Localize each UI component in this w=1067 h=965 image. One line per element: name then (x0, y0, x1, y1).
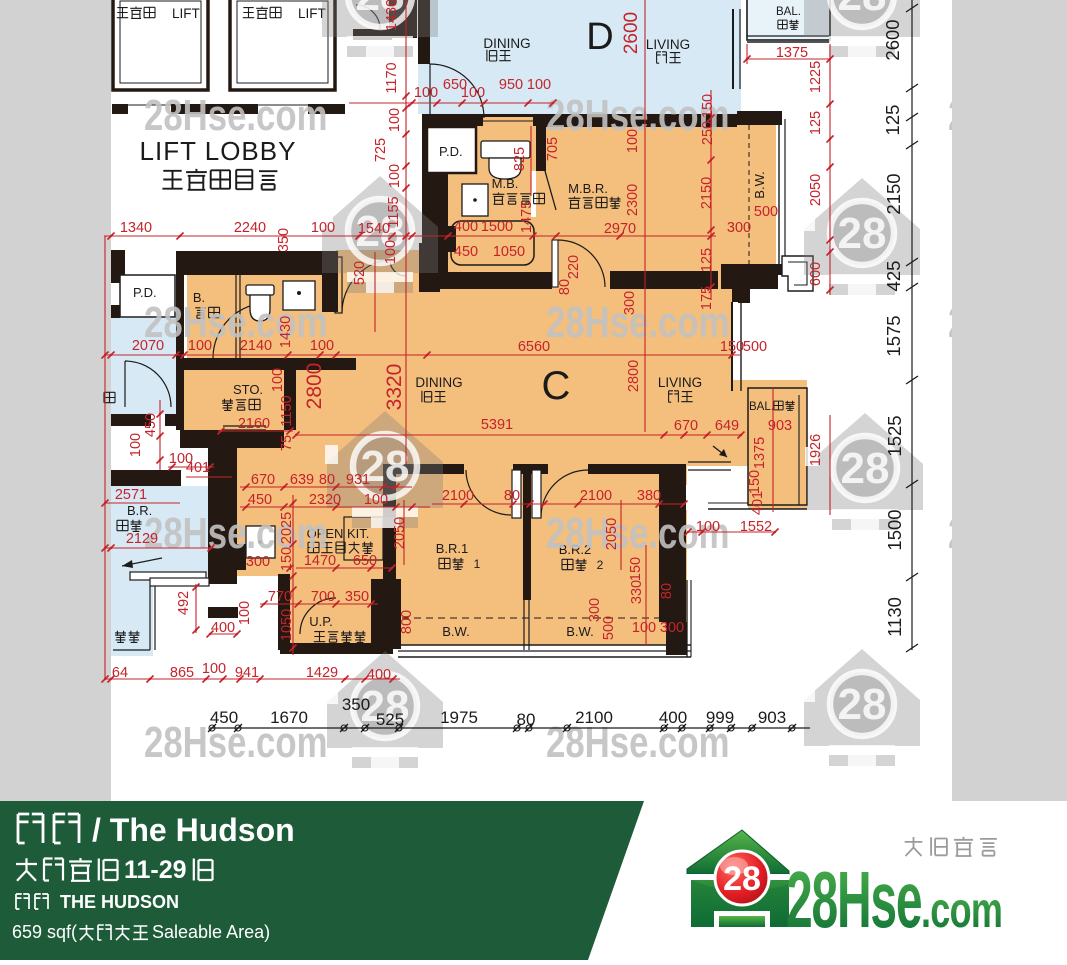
svg-text:100: 100 (270, 368, 286, 392)
svg-text:1470: 1470 (304, 553, 336, 569)
svg-text:28: 28 (838, 0, 887, 20)
svg-text:LIVING: LIVING (658, 375, 702, 390)
svg-text:2600: 2600 (882, 19, 903, 60)
svg-text:2140: 2140 (240, 338, 272, 354)
svg-text:380: 380 (637, 488, 661, 504)
svg-text:2150: 2150 (699, 177, 715, 209)
svg-text:2025: 2025 (279, 512, 295, 544)
svg-text:80: 80 (517, 710, 536, 729)
svg-text:100: 100 (310, 338, 334, 354)
svg-text:P.D.: P.D. (439, 144, 463, 159)
svg-text:DINING: DINING (415, 375, 462, 390)
svg-text:175: 175 (699, 286, 715, 310)
svg-text:28: 28 (841, 444, 890, 493)
svg-text:450: 450 (248, 492, 272, 508)
svg-text:64: 64 (112, 665, 128, 681)
svg-text:STO.: STO. (233, 382, 263, 397)
svg-text:28Hse.com: 28Hse.com (144, 509, 328, 558)
svg-text:2600: 2600 (621, 12, 642, 54)
svg-text:865: 865 (170, 665, 194, 681)
svg-text:LIFT: LIFT (298, 6, 326, 21)
svg-text:100: 100 (527, 77, 551, 93)
svg-text:1926: 1926 (808, 434, 824, 466)
svg-text:220: 220 (566, 255, 582, 279)
svg-text:400: 400 (367, 667, 391, 683)
svg-text:1050: 1050 (279, 609, 295, 641)
svg-text:725: 725 (373, 138, 389, 162)
svg-text:28Hse.com: 28Hse.com (546, 718, 730, 767)
svg-text:825: 825 (512, 147, 528, 171)
svg-text:650: 650 (353, 553, 377, 569)
svg-text:330: 330 (629, 580, 645, 604)
svg-text:100: 100 (188, 338, 212, 354)
svg-text:2050: 2050 (808, 174, 824, 206)
svg-text:400: 400 (211, 620, 235, 636)
svg-text:B.W.: B.W. (752, 171, 767, 198)
svg-text:100: 100 (414, 85, 438, 101)
svg-text:1375: 1375 (752, 437, 768, 469)
svg-text:M.B.: M.B. (492, 176, 519, 191)
svg-text:659 sqf(: 659 sqf( (12, 922, 77, 942)
svg-text:5391: 5391 (481, 417, 513, 433)
svg-text:1670: 1670 (270, 708, 308, 727)
svg-text:3320: 3320 (383, 364, 406, 411)
svg-text:500: 500 (601, 616, 617, 640)
svg-text:.com: .com (921, 883, 1002, 938)
svg-text:400: 400 (454, 219, 478, 235)
svg-text:2800: 2800 (626, 360, 642, 392)
svg-text:1225: 1225 (808, 61, 824, 93)
svg-text:2100: 2100 (575, 708, 613, 727)
svg-text:300: 300 (622, 291, 638, 315)
svg-text:450: 450 (210, 708, 238, 727)
svg-text:80: 80 (557, 279, 573, 295)
svg-text:300: 300 (727, 220, 751, 236)
svg-text:300: 300 (246, 554, 270, 570)
svg-text:2300: 2300 (625, 184, 641, 216)
svg-text:401: 401 (186, 460, 210, 476)
svg-text:1575: 1575 (883, 315, 904, 356)
svg-text:670: 670 (251, 472, 275, 488)
svg-text:28: 28 (838, 209, 887, 258)
svg-text:150: 150 (700, 94, 716, 118)
svg-text:350: 350 (345, 589, 369, 605)
svg-text:100: 100 (387, 108, 403, 132)
svg-text:B.W.: B.W. (442, 624, 469, 639)
svg-text:100: 100 (383, 240, 399, 264)
svg-text:2150: 2150 (883, 173, 904, 214)
svg-text:BAL.: BAL. (776, 6, 801, 18)
svg-text:2970: 2970 (604, 221, 636, 237)
svg-text:1130: 1130 (884, 597, 905, 637)
svg-text:M.B.R.: M.B.R. (568, 181, 608, 196)
svg-text:125: 125 (699, 248, 715, 272)
svg-text:1429: 1429 (306, 665, 338, 681)
svg-text:1: 1 (474, 557, 481, 571)
svg-text:2129: 2129 (126, 531, 158, 547)
svg-text:100: 100 (202, 661, 226, 677)
svg-text:400: 400 (659, 708, 687, 727)
svg-text:770: 770 (268, 589, 292, 605)
svg-text:1475: 1475 (519, 201, 535, 233)
svg-text:THE HUDSON: THE HUDSON (60, 892, 179, 912)
svg-text:B.W.: B.W. (566, 624, 593, 639)
svg-text:C: C (542, 364, 571, 408)
svg-text:2: 2 (597, 558, 604, 572)
svg-text:150: 150 (279, 547, 295, 571)
svg-text:649: 649 (715, 418, 739, 434)
svg-text:450: 450 (143, 413, 159, 437)
svg-text:1430: 1430 (384, 0, 400, 31)
svg-text:B.R.1: B.R.1 (436, 541, 469, 556)
svg-text:2050: 2050 (604, 518, 620, 550)
svg-text:2050: 2050 (392, 517, 408, 549)
svg-text:150: 150 (628, 557, 644, 581)
svg-text:705: 705 (545, 137, 561, 161)
svg-text:150: 150 (747, 470, 763, 494)
svg-text:LIFT: LIFT (172, 6, 200, 21)
svg-text:100: 100 (311, 220, 335, 236)
svg-text:80: 80 (504, 488, 520, 504)
svg-text:125: 125 (808, 111, 824, 135)
svg-text:28: 28 (838, 680, 887, 729)
svg-text:950: 950 (499, 77, 523, 93)
svg-text:941: 941 (235, 665, 259, 681)
svg-text:1340: 1340 (120, 220, 152, 236)
svg-text:1430: 1430 (278, 316, 294, 348)
svg-text:300: 300 (660, 620, 684, 636)
svg-text:350: 350 (342, 695, 370, 714)
svg-text:100: 100 (128, 433, 144, 457)
svg-text:2800: 2800 (303, 363, 326, 410)
svg-text:U.P.: U.P. (309, 614, 333, 629)
svg-text:520: 520 (352, 261, 368, 285)
svg-text:125: 125 (882, 105, 903, 136)
svg-text:100: 100 (387, 164, 403, 188)
svg-text:903: 903 (768, 418, 792, 434)
svg-text:LIVING: LIVING (646, 37, 690, 52)
svg-text:28Hse.com: 28Hse.com (144, 91, 328, 140)
svg-text:350: 350 (276, 228, 292, 252)
svg-text:1975: 1975 (440, 708, 478, 727)
svg-text:28Hse.com: 28Hse.com (144, 298, 328, 347)
svg-text:Saleable Area): Saleable Area) (152, 922, 270, 942)
svg-text:1552: 1552 (740, 519, 772, 535)
svg-text:401: 401 (750, 491, 766, 515)
svg-text:903: 903 (758, 708, 786, 727)
svg-text:100: 100 (461, 85, 485, 101)
svg-text:670: 670 (674, 418, 698, 434)
svg-text:2320: 2320 (309, 492, 341, 508)
svg-text:100: 100 (625, 129, 641, 153)
svg-text:1050: 1050 (493, 244, 525, 260)
svg-text:639: 639 (290, 472, 314, 488)
svg-text:2100: 2100 (580, 488, 612, 504)
svg-text:999: 999 (706, 708, 734, 727)
svg-text:LIFT LOBBY: LIFT LOBBY (140, 136, 297, 166)
svg-text:80: 80 (659, 583, 675, 599)
svg-text:80: 80 (319, 472, 335, 488)
svg-text:2571: 2571 (115, 487, 147, 503)
svg-text:1155: 1155 (386, 196, 402, 227)
svg-text:100: 100 (696, 519, 720, 535)
svg-text:2240: 2240 (234, 220, 266, 236)
svg-text:450: 450 (454, 244, 478, 260)
svg-text:75: 75 (279, 435, 295, 451)
svg-text:2160: 2160 (238, 416, 270, 432)
svg-text:100: 100 (364, 492, 388, 508)
svg-text:2100: 2100 (442, 488, 474, 504)
svg-text:425: 425 (883, 261, 904, 292)
svg-text:700: 700 (311, 589, 335, 605)
svg-text:1525: 1525 (884, 415, 905, 456)
svg-text:1500: 1500 (481, 219, 513, 235)
svg-text:1375: 1375 (776, 45, 808, 61)
svg-text:DINING: DINING (483, 36, 530, 51)
svg-text:D: D (586, 16, 613, 58)
svg-text:100: 100 (632, 620, 656, 636)
svg-text:100: 100 (237, 601, 253, 625)
svg-text:600: 600 (808, 262, 824, 286)
svg-text:1170: 1170 (384, 62, 400, 93)
svg-text:2070: 2070 (132, 338, 164, 354)
svg-text:/ The Hudson: / The Hudson (92, 812, 295, 848)
svg-text:28Hse: 28Hse (786, 854, 921, 944)
svg-text:11-29: 11-29 (124, 856, 187, 884)
svg-text:6560: 6560 (518, 339, 550, 355)
svg-text:500: 500 (743, 339, 767, 355)
svg-text:525: 525 (376, 710, 404, 729)
svg-text:28: 28 (723, 860, 761, 898)
svg-text:BAL.: BAL. (749, 401, 774, 413)
svg-text:1150: 1150 (279, 395, 295, 426)
svg-text:250: 250 (700, 121, 716, 145)
svg-text:500: 500 (754, 204, 778, 220)
svg-text:931: 931 (346, 472, 370, 488)
svg-text:150: 150 (720, 339, 744, 355)
svg-text:1500: 1500 (884, 509, 905, 550)
svg-text:800: 800 (399, 610, 415, 634)
svg-text:492: 492 (176, 591, 192, 615)
